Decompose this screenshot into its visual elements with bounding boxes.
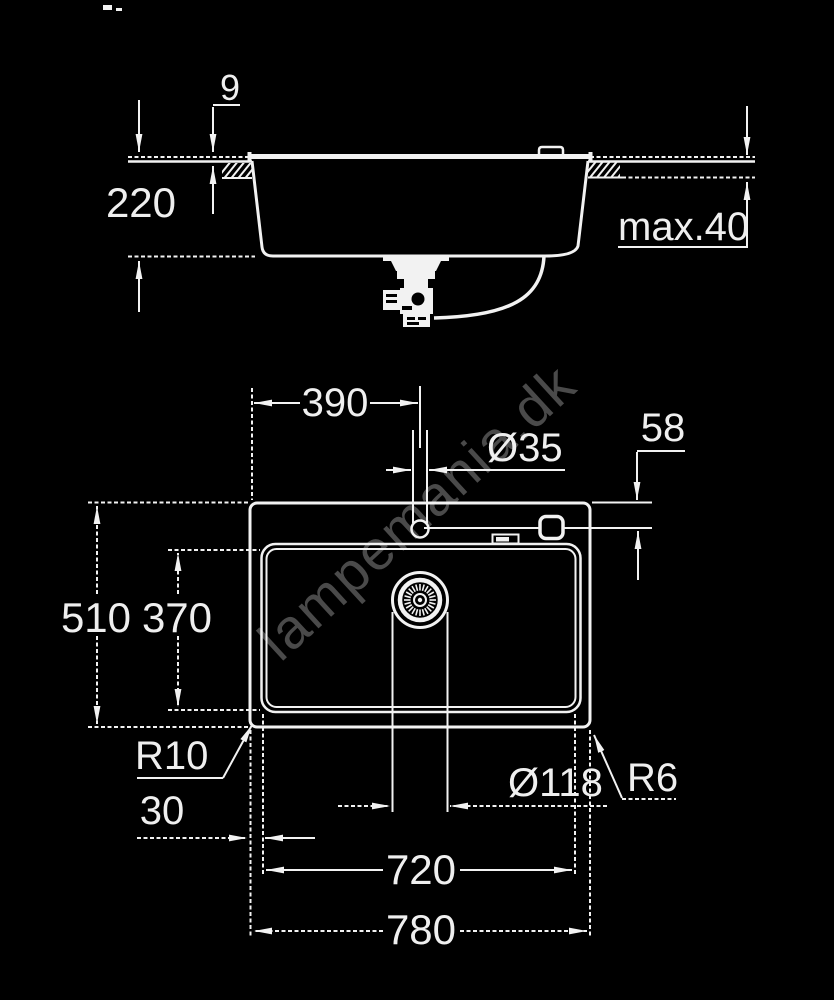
dim-label-720: 720 <box>386 846 456 893</box>
dim-label-370: 370 <box>142 594 212 641</box>
dim-label-9: 9 <box>220 67 240 108</box>
dim-label-r6: R6 <box>627 756 678 800</box>
dim-label-o118: Ø118 <box>508 761 603 805</box>
dim-label-220: 220 <box>106 179 176 226</box>
rim-endcap-right <box>589 152 593 161</box>
drain-strainer <box>393 573 448 628</box>
dim-label-r10: R10 <box>135 734 208 778</box>
dim-label-390: 390 <box>302 381 369 425</box>
technical-drawing-page: lampemania.dk <box>0 0 834 1000</box>
dim-label-o35: Ø35 <box>487 426 563 470</box>
dim-label-30: 30 <box>140 789 185 833</box>
rim-endcap-left <box>248 152 252 161</box>
sink-technical-drawing: lampemania.dk <box>0 0 834 1000</box>
dim-label-510: 510 <box>61 594 131 641</box>
accessory-hole <box>540 517 563 539</box>
dim-label-780: 780 <box>386 906 456 953</box>
dim-label-max40: max.40 <box>618 205 749 249</box>
dim-label-58: 58 <box>641 406 686 450</box>
